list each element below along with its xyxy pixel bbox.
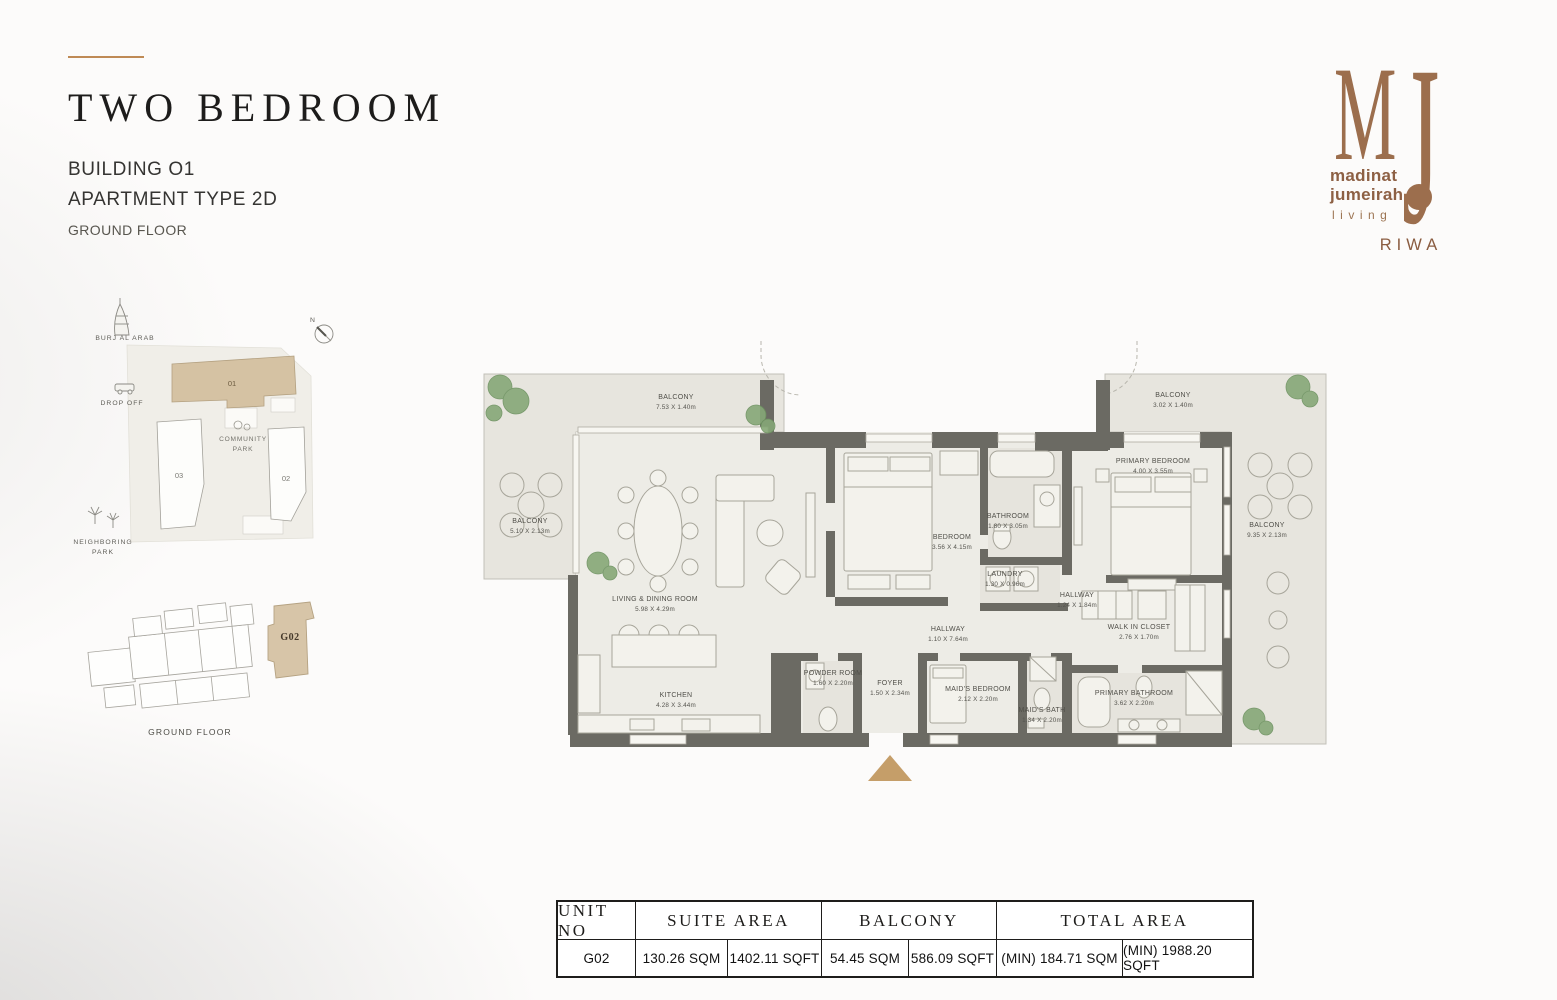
building-03-label: 03 <box>175 471 183 480</box>
brand-line-1: madinat <box>1330 166 1403 185</box>
table-header-total-area: TOTAL AREA <box>997 902 1252 940</box>
mjl-logo: M J madinat jumeirah living RIWA <box>1318 55 1508 265</box>
room-dims: 1.50 X 2.34m <box>870 690 910 697</box>
site-map: 01 03 02 COMMUNITY PARK BURJ AL ARAB DRO… <box>75 288 345 580</box>
monogram-dot <box>1406 184 1432 210</box>
table-header-suite-area: SUITE AREA <box>636 902 822 940</box>
room-dims: 3.56 X 4.15m <box>932 544 972 551</box>
neighboring-park-label-2: PARK <box>92 549 114 556</box>
room-dims: 3.62 X 2.20m <box>1114 700 1154 707</box>
room-label: KITCHEN <box>660 692 693 699</box>
table-cell-balcony-sqm: 54.45 SQM <box>822 940 909 976</box>
monogram-j: J <box>1402 19 1439 272</box>
area-table: UNIT NO SUITE AREA BALCONY TOTAL AREA G0… <box>556 900 1254 978</box>
floor-plan: BALCONY 7.53 X 1.40m BALCONY 5.10 X 2.13… <box>478 335 1328 795</box>
room-label: BALCONY <box>658 394 694 401</box>
room-dims: 5.10 X 2.13m <box>510 528 550 535</box>
room-label: HALLWAY <box>931 626 965 633</box>
room-label: BALCONY <box>512 518 548 525</box>
brand-line-2: jumeirah <box>1330 185 1403 204</box>
room-dims: 1.10 X 7.64m <box>928 636 968 643</box>
room-label: MAID'S BEDROOM <box>945 686 1011 693</box>
dining-table <box>618 470 698 592</box>
room-dims: 1.24 X 1.84m <box>1057 602 1097 609</box>
room-label: WALK IN CLOSET <box>1108 624 1171 631</box>
building-02-label: 02 <box>282 474 290 483</box>
north-label: N <box>310 317 316 324</box>
room-dims: 2.12 X 2.20m <box>958 696 998 703</box>
room-dims: 7.53 X 1.40m <box>656 404 696 411</box>
drop-off-icon <box>115 384 134 394</box>
floor-label: GROUND FLOOR <box>68 222 446 238</box>
brochure-page: TWO BEDROOM BUILDING O1 APARTMENT TYPE 2… <box>0 0 1557 1000</box>
room-dims: 1.30 X 0.96m <box>985 581 1025 588</box>
room-dims: 1.34 X 2.20m <box>1022 717 1062 724</box>
burj-al-arab-label: BURJ AL ARAB <box>95 335 154 342</box>
room-dims: 2.76 X 1.70m <box>1119 634 1159 641</box>
room-label: BEDROOM <box>933 534 971 541</box>
brand-wordmark: madinat jumeirah living <box>1330 166 1403 225</box>
room-label: PRIMARY BATHROOM <box>1095 690 1173 697</box>
key-plan: G02 GROUND FLOOR <box>78 588 324 740</box>
page-header: TWO BEDROOM BUILDING O1 APARTMENT TYPE 2… <box>68 56 446 238</box>
table-cell-unit: G02 <box>558 940 636 976</box>
maids-bed <box>930 665 966 723</box>
room-label: LAUNDRY <box>987 571 1022 578</box>
room-label: BALCONY <box>1249 522 1285 529</box>
room-label: HALLWAY <box>1060 592 1094 599</box>
apartment-type-label: APARTMENT TYPE 2D <box>68 185 446 215</box>
table-cell-total-sqm: (MIN) 184.71 SQM <box>997 940 1123 976</box>
page-title: TWO BEDROOM <box>68 84 446 131</box>
community-park-label-2: PARK <box>233 446 254 453</box>
room-label: LIVING & DINING ROOM <box>612 596 698 603</box>
room-dims: 3.02 X 1.40m <box>1153 402 1193 409</box>
burj-al-arab-icon <box>115 298 129 335</box>
entry-arrow <box>868 755 912 781</box>
table-cell-balcony-sqft: 586.09 SQFT <box>909 940 997 976</box>
key-plan-caption: GROUND FLOOR <box>148 727 232 737</box>
room-dims: 1.80 X 3.05m <box>988 523 1028 530</box>
neighboring-park-palms-icon <box>88 507 119 528</box>
room-label: BALCONY <box>1155 392 1191 399</box>
room-dims: 5.98 X 4.29m <box>635 606 675 613</box>
room-dims: 1.60 X 2.20m <box>813 680 853 687</box>
building-label: BUILDING O1 <box>68 155 446 185</box>
room-dims: 9.35 X 2.13m <box>1247 532 1287 539</box>
table-header-balcony: BALCONY <box>822 902 997 940</box>
room-label: MAID'S BATH <box>1019 707 1066 714</box>
drop-off-label: DROP OFF <box>101 400 144 407</box>
table-header-unit-no: UNIT NO <box>558 902 636 940</box>
building-01-label: 01 <box>228 379 236 388</box>
table-cell-suite-sqft: 1402.11 SQFT <box>728 940 822 976</box>
room-label: POWDER ROOM <box>804 670 863 677</box>
key-plan-unit-label: G02 <box>280 632 299 643</box>
community-park-label-1: COMMUNITY <box>219 436 267 443</box>
room-label: BATHROOM <box>987 513 1029 520</box>
room-label: PRIMARY BEDROOM <box>1116 458 1190 465</box>
room-label: FOYER <box>877 680 903 687</box>
accent-line <box>68 56 144 58</box>
key-plan-outline <box>84 600 261 713</box>
tv-console <box>806 493 815 577</box>
table-cell-total-sqft: (MIN) 1988.20 SQFT <box>1123 940 1252 976</box>
table-cell-suite-sqm: 130.26 SQM <box>636 940 728 976</box>
north-compass-icon <box>315 325 333 343</box>
room-dims: 4.28 X 3.44m <box>656 702 696 709</box>
neighboring-park-label-1: NEIGHBORING <box>73 539 132 546</box>
brand-line-3: living <box>1332 206 1403 225</box>
dashed-arcs <box>761 341 1137 395</box>
mjl-monogram: M J <box>1318 55 1508 255</box>
project-name: RIWA <box>1326 236 1496 255</box>
room-dims: 4.00 X 3.55m <box>1133 468 1173 475</box>
